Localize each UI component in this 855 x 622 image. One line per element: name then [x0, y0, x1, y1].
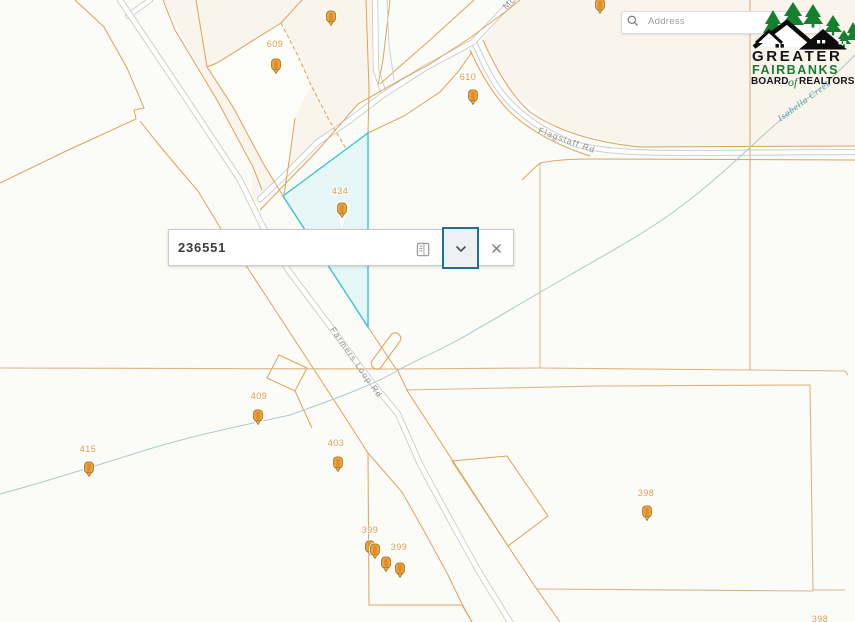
svg-text:399: 399	[391, 542, 408, 552]
svg-text:BOARD: BOARD	[751, 76, 789, 87]
svg-text:415: 415	[80, 444, 97, 454]
svg-text:403: 403	[328, 438, 345, 448]
svg-text:399: 399	[362, 525, 379, 535]
svg-text:409: 409	[251, 391, 268, 401]
svg-text:610: 610	[460, 72, 477, 82]
svg-text:434: 434	[332, 186, 349, 196]
svg-text:609: 609	[267, 39, 284, 49]
svg-text:of: of	[788, 75, 799, 89]
svg-text:REALTORS: REALTORS	[799, 76, 855, 87]
svg-text:398: 398	[638, 488, 655, 498]
svg-text:398: 398	[812, 614, 829, 622]
